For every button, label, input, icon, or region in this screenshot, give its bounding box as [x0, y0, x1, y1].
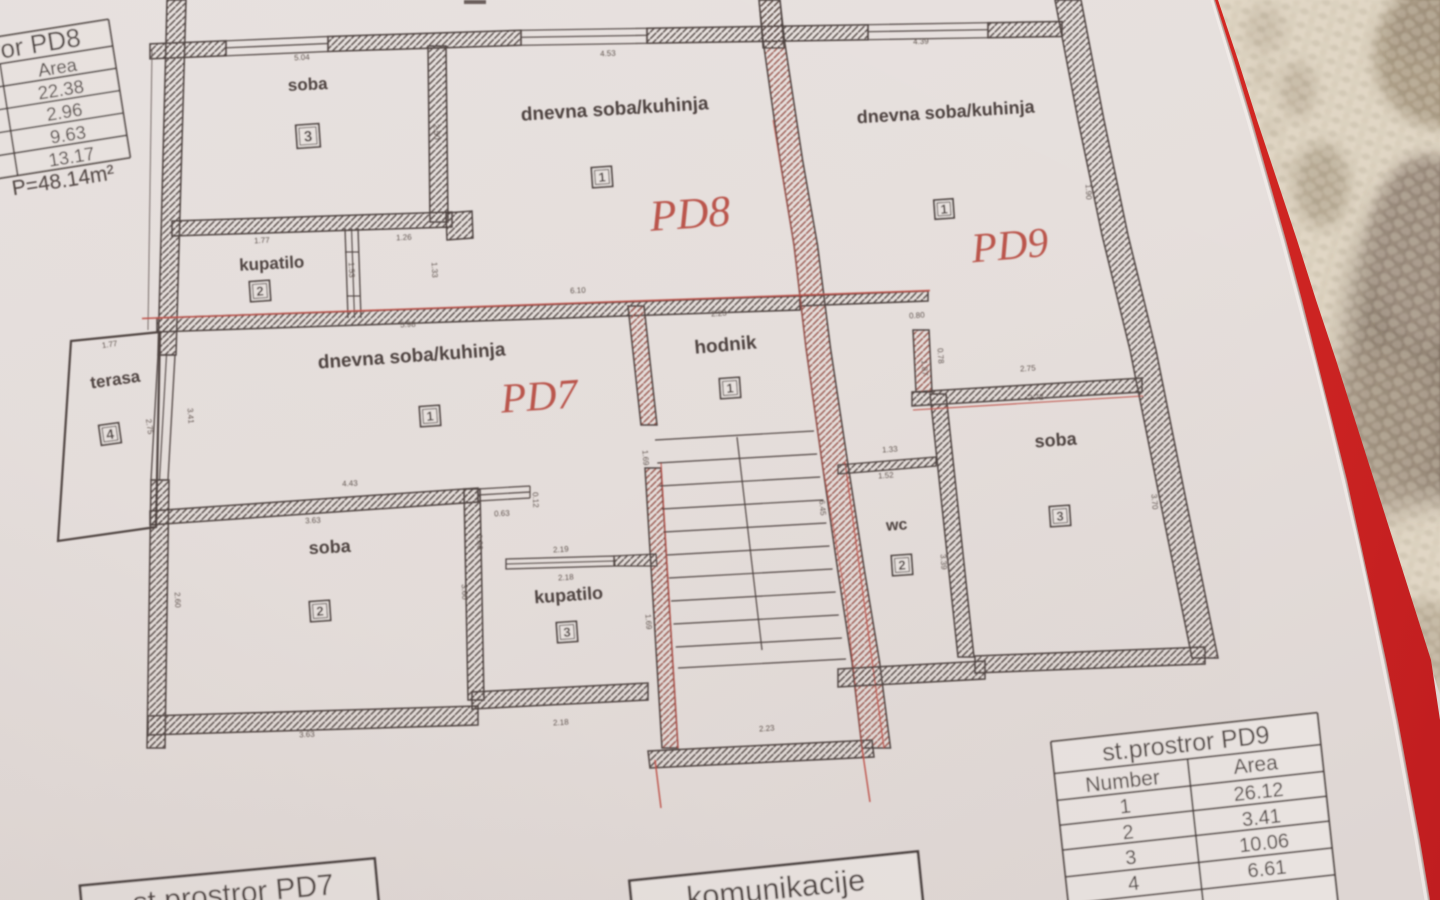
svg-text:3.41: 3.41: [1241, 805, 1282, 831]
svg-text:6.61: 6.61: [1246, 856, 1287, 882]
